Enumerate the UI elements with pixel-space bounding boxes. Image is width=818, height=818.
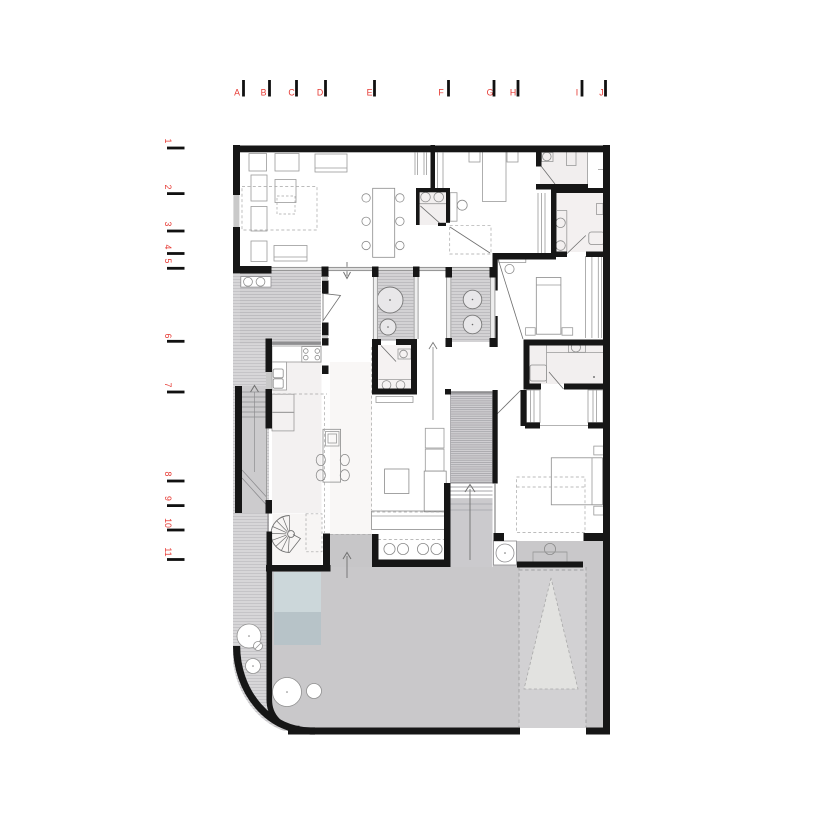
svg-text:C: C	[288, 88, 295, 98]
svg-text:3: 3	[163, 222, 173, 227]
svg-text:9: 9	[163, 496, 173, 501]
svg-text:5: 5	[163, 259, 173, 264]
svg-text:H: H	[510, 88, 516, 98]
svg-text:6: 6	[163, 334, 173, 339]
svg-text:2: 2	[163, 185, 173, 190]
svg-text:8: 8	[163, 472, 173, 477]
svg-text:I: I	[576, 88, 578, 98]
svg-text:11: 11	[163, 547, 173, 556]
svg-text:G: G	[487, 88, 494, 98]
svg-text:J: J	[599, 88, 603, 98]
svg-text:4: 4	[163, 245, 173, 250]
svg-text:1: 1	[163, 139, 173, 144]
svg-text:F: F	[438, 88, 444, 98]
svg-text:E: E	[367, 88, 373, 98]
svg-text:D: D	[317, 88, 323, 98]
svg-text:10: 10	[163, 518, 173, 528]
svg-text:B: B	[261, 88, 267, 98]
svg-text:A: A	[234, 88, 240, 98]
svg-text:7: 7	[163, 383, 173, 388]
